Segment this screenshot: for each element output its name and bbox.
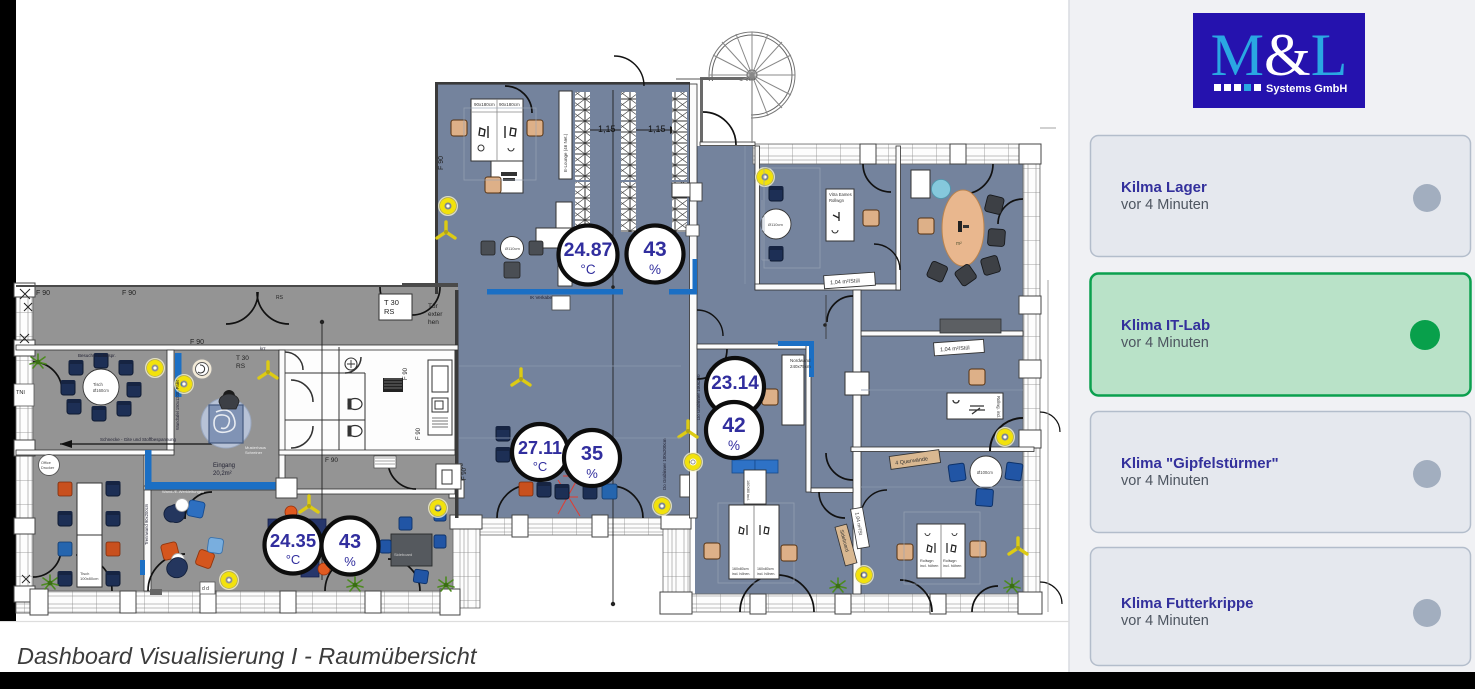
svg-text:F 90: F 90 [122,290,136,297]
svg-text:vor 4 Minuten: vor 4 Minuten [1121,613,1209,629]
svg-text:Do Grabinner 100x200: Do Grabinner 100x200 [696,374,701,420]
svg-text:incl. höhen.: incl. höhen. [732,572,750,576]
svg-text:m²: m² [956,241,962,247]
svg-text:vor 4 Minuten: vor 4 Minuten [1121,473,1209,489]
svg-text:Dashboard Visualisierung I - R: Dashboard Visualisierung I - Raumübersic… [17,643,478,669]
svg-text:90x180cm: 90x180cm [499,102,520,107]
svg-text:Rollwgn: Rollwgn [943,559,957,563]
svg-text:Drucker: Drucker [41,466,55,470]
svg-text:43: 43 [339,531,361,553]
svg-text:Wand-/E-Werkleitungen: Wand-/E-Werkleitungen [162,489,204,494]
svg-text:Rollwgn: Rollwgn [829,198,845,203]
svg-text:°C: °C [286,552,301,567]
svg-text:E-Lounge (46 Net.): E-Lounge (46 Net.) [563,133,568,172]
svg-text:F 90: F 90 [190,339,204,346]
svg-text:%: % [344,554,356,569]
svg-text:Office: Office [41,461,51,465]
svg-text:Do Grabinner 100x200cm: Do Grabinner 100x200cm [662,438,667,490]
svg-text:°C: °C [580,262,595,277]
svg-text:RS: RS [276,295,284,301]
svg-text:20,2m²: 20,2m² [213,471,232,477]
svg-text:incl. höhen: incl. höhen [920,564,938,568]
svg-text:Besuchs- u. Bespr.: Besuchs- u. Bespr. [78,353,116,358]
svg-text:23.14: 23.14 [711,373,759,394]
svg-text:Tür: Tür [428,303,439,310]
svg-text:Ø100cm: Ø100cm [977,470,993,475]
svg-text:Sideboard: Sideboard [394,552,412,557]
svg-text:exter: exter [428,311,443,318]
svg-text:F 90: F 90 [416,427,422,440]
svg-text:24.35: 24.35 [270,530,316,551]
svg-text:Nordwand: Nordwand [790,358,811,363]
svg-text:d d: d d [202,586,209,592]
svg-text:Rollwg. incl.: Rollwg. incl. [996,396,1001,418]
svg-text:RS: RS [236,363,246,370]
svg-text:35: 35 [581,443,603,465]
svg-text:F 90: F 90 [325,457,338,464]
svg-text:vor 4 Minuten: vor 4 Minuten [1121,335,1209,351]
svg-text:Ø110cm: Ø110cm [505,246,520,251]
svg-text:hen: hen [428,319,439,326]
svg-text:100x80cm: 100x80cm [80,576,99,581]
svg-text:1,15: 1,15 [598,124,616,134]
svg-text:M&L: M&L [1211,22,1348,88]
svg-text:RS: RS [384,307,394,316]
svg-text:T 30: T 30 [384,298,399,307]
svg-text:27.11: 27.11 [518,438,562,458]
svg-text:TNI: TNI [16,390,25,396]
svg-text:%: % [649,262,661,277]
svg-text:F 90: F 90 [36,290,50,297]
svg-text:%: % [728,438,740,453]
svg-text:Klima Futterkrippe: Klima Futterkrippe [1121,595,1254,612]
svg-text:43: 43 [643,238,666,261]
svg-text:160x80cm: 160x80cm [757,567,774,571]
svg-text:Rollwgn: Rollwgn [920,559,934,563]
svg-text:F 90: F 90 [403,367,409,380]
svg-text:Kilma Lager: Kilma Lager [1121,179,1207,196]
svg-text:240x75cm: 240x75cm [790,364,811,369]
svg-text:Eingang: Eingang [213,463,235,469]
svg-text:Ø160cm: Ø160cm [93,388,109,393]
svg-text:Klima IT-Lab: Klima IT-Lab [1121,317,1210,334]
svg-text:Klima "Gipfelstürmer": Klima "Gipfelstürmer" [1121,455,1279,472]
svg-text:T 30: T 30 [236,355,249,362]
svg-text:%: % [586,466,598,481]
svg-text:incl. höhen: incl. höhen [943,564,961,568]
svg-text:42: 42 [722,414,745,437]
svg-text:160x80cm: 160x80cm [732,567,749,571]
svg-text:160X80 incl.: 160X80 incl. [746,480,750,501]
svg-text:F 90: F 90 [438,156,445,170]
svg-text:1,15: 1,15 [648,124,666,134]
svg-text:Schreiner: Schreiner [245,450,263,455]
svg-text:krz: krz [260,346,266,351]
svg-text:incl. höhen.: incl. höhen. [757,572,775,576]
svg-text:Systems GmbH: Systems GmbH [1266,83,1347,95]
svg-text:Schnecke - Gite und Stoffbespa: Schnecke - Gite und Stoffbespannung [100,437,176,442]
svg-text:Tisch: Tisch [93,382,104,387]
svg-text:vor 4 Minuten: vor 4 Minuten [1121,197,1209,213]
svg-text:Wandtafel 150x1200, Palet: Wandtafel 150x1200, Palet [175,379,180,430]
svg-text:°C: °C [533,459,548,474]
svg-text:Trennwand 90x200cm: Trennwand 90x200cm [144,503,149,545]
svg-text:90x180cm: 90x180cm [474,102,495,107]
svg-text:Ø110cm: Ø110cm [768,222,783,227]
svg-text:24.87: 24.87 [564,239,613,261]
svg-text:Vitra Eames: Vitra Eames [829,192,852,197]
